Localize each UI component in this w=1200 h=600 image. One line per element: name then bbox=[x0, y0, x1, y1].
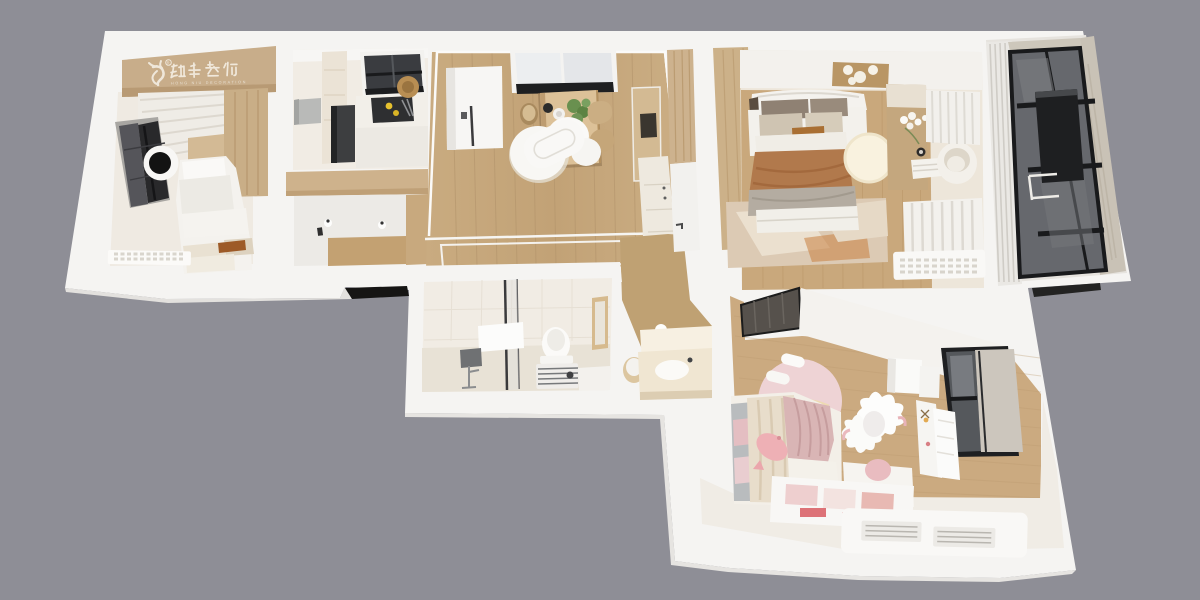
svg-text:R: R bbox=[167, 61, 170, 66]
